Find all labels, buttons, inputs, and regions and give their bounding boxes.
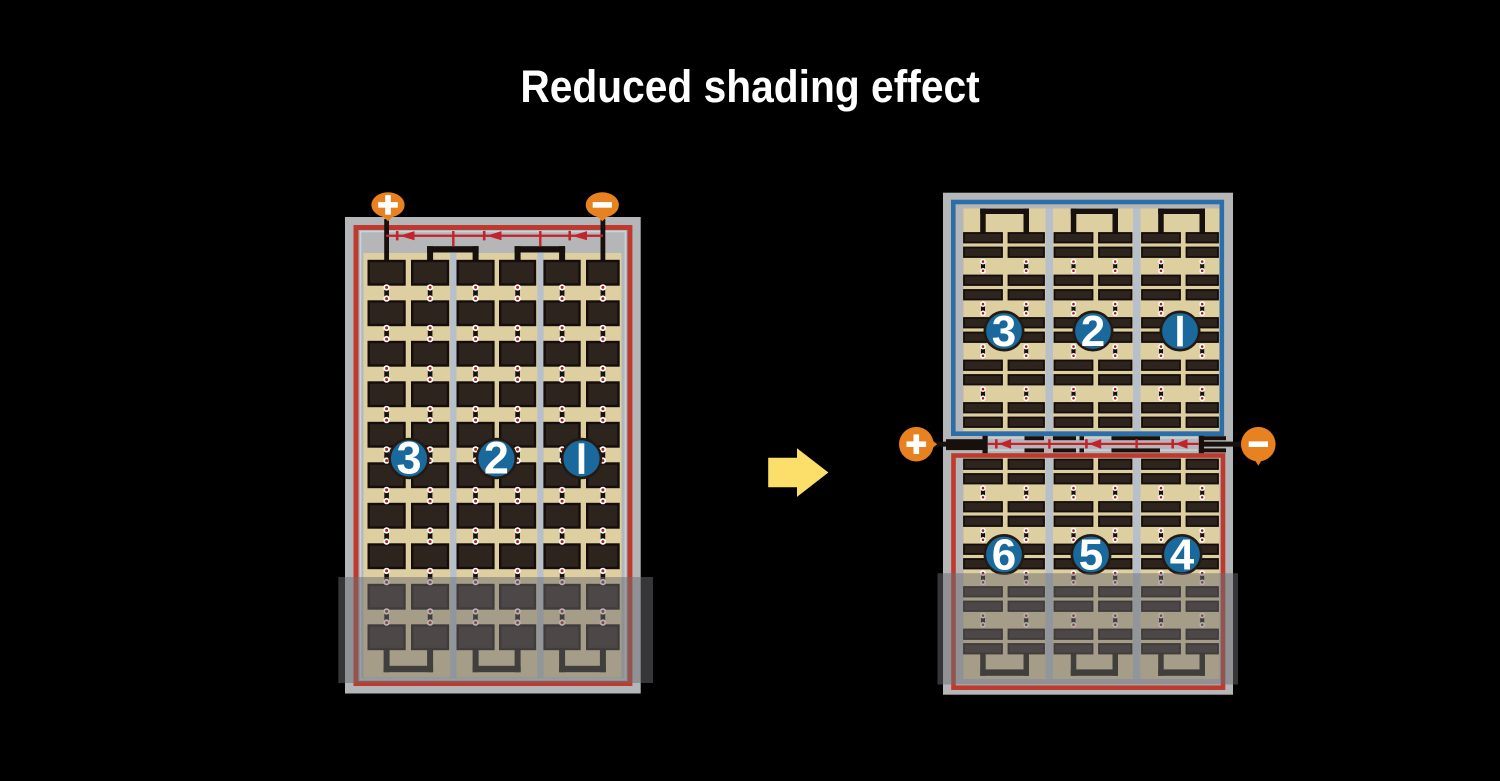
svg-text:6: 6 <box>992 531 1016 580</box>
svg-text:5: 5 <box>1079 531 1103 580</box>
svg-text:3: 3 <box>992 307 1016 356</box>
svg-text:2: 2 <box>484 433 509 484</box>
svg-text:2: 2 <box>1081 307 1105 356</box>
svg-text:4: 4 <box>1170 531 1195 580</box>
svg-text:3: 3 <box>396 433 421 484</box>
